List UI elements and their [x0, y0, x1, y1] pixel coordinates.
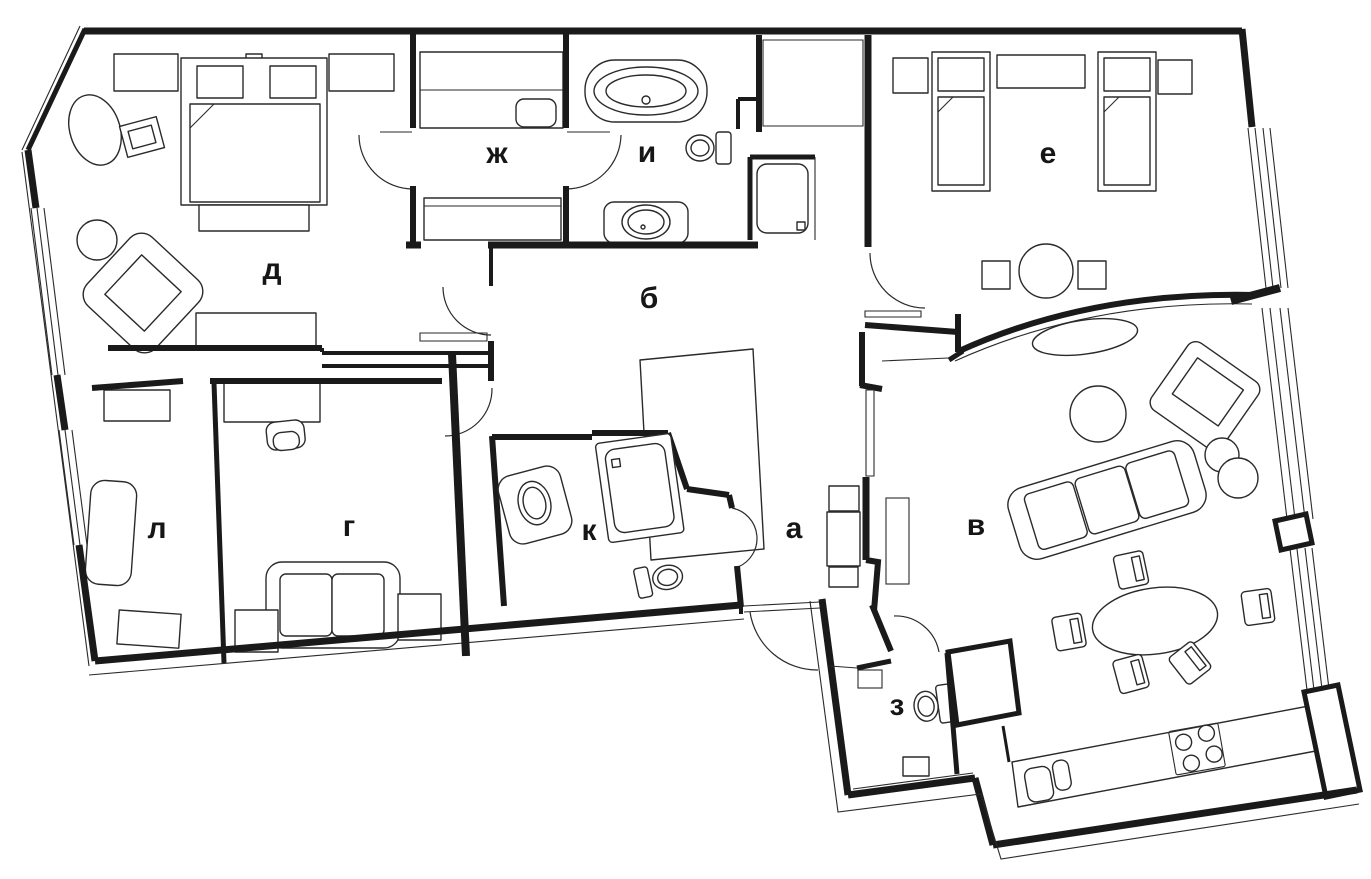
desk-chair-icon [265, 419, 306, 452]
cabinet-icon [104, 390, 170, 421]
dining-table-icon [1088, 580, 1222, 663]
living-room-v-furniture [1003, 313, 1275, 695]
toilet-icon [633, 560, 685, 599]
sink-icon [903, 757, 929, 776]
door-arc-hall-d [443, 287, 491, 335]
room-label-b: б [640, 282, 659, 315]
door-arc-b-e [870, 253, 925, 308]
closet-door-icon [516, 99, 556, 127]
chair-icon [1051, 613, 1086, 652]
room-label-e: е [1040, 137, 1057, 170]
shelf-icon [858, 670, 882, 688]
rug-icon [60, 88, 130, 172]
door-arc-z [894, 616, 939, 652]
chair-icon [982, 261, 1010, 289]
door-arc-d-zh [359, 135, 413, 189]
sofa-icon [1003, 436, 1210, 563]
floor-plan-page: а б в г д е ж з и к л [0, 0, 1371, 879]
nightstand-icon [114, 54, 178, 91]
nightstand-icon [329, 54, 394, 91]
room-label-i: и [638, 136, 656, 169]
shower-tray-icon [757, 164, 808, 233]
bench-icon [829, 567, 858, 587]
room-label-a: а [786, 512, 803, 545]
bathtub-icon [585, 60, 707, 122]
round-table-icon [1070, 386, 1126, 442]
sink-icon [604, 202, 688, 243]
floor-plan-canvas: а б в г д е ж з и к л [0, 0, 1371, 879]
desk-icon [224, 380, 320, 422]
dresser-icon [997, 55, 1085, 88]
nightstand-icon [893, 58, 928, 93]
bedroom-d-furniture [60, 54, 394, 359]
room-label-d: д [262, 253, 281, 286]
armchair-icon [1146, 338, 1263, 454]
bedroom-e-furniture [893, 52, 1192, 298]
room-label-zh: ж [485, 137, 508, 170]
shower-icon [595, 433, 684, 543]
single-bed-icon [1098, 52, 1156, 191]
room-label-l: л [147, 512, 166, 545]
sink-icon [495, 463, 575, 547]
bench-icon [827, 512, 860, 566]
nightstand-icon [1158, 60, 1192, 94]
room-label-v: в [967, 509, 985, 542]
chest-icon [117, 610, 181, 648]
window-band-left [22, 152, 89, 666]
dresser-icon [196, 313, 316, 348]
chair-icon [1113, 550, 1149, 589]
entry-door-arc [750, 612, 818, 670]
room-g-furniture [224, 380, 441, 652]
single-bed-icon [932, 52, 990, 191]
chair-icon [1241, 588, 1275, 626]
round-table-icon [1019, 244, 1073, 298]
bench-icon [829, 486, 859, 511]
chair-icon [1112, 654, 1150, 695]
wc-z-fixtures [858, 670, 954, 776]
room-l-furniture [84, 390, 181, 648]
room-label-k: к [581, 514, 597, 547]
pantry-walls [948, 641, 1019, 725]
kitchen-fixtures [1012, 702, 1337, 807]
room-label-z: з [890, 689, 905, 722]
double-bed-icon [181, 58, 327, 231]
kitchen-counter-icon [1012, 702, 1337, 807]
door-arc-zh-i [566, 135, 621, 189]
side-table-icon [77, 220, 117, 260]
console-icon [886, 498, 909, 584]
side-table-icon [1218, 458, 1258, 498]
closet-icon [424, 198, 561, 240]
chair-icon [1078, 261, 1106, 289]
toilet-icon [686, 132, 731, 164]
tv-easel-icon [120, 117, 165, 158]
daybed-icon [84, 480, 137, 587]
room-label-g: г [343, 510, 356, 543]
